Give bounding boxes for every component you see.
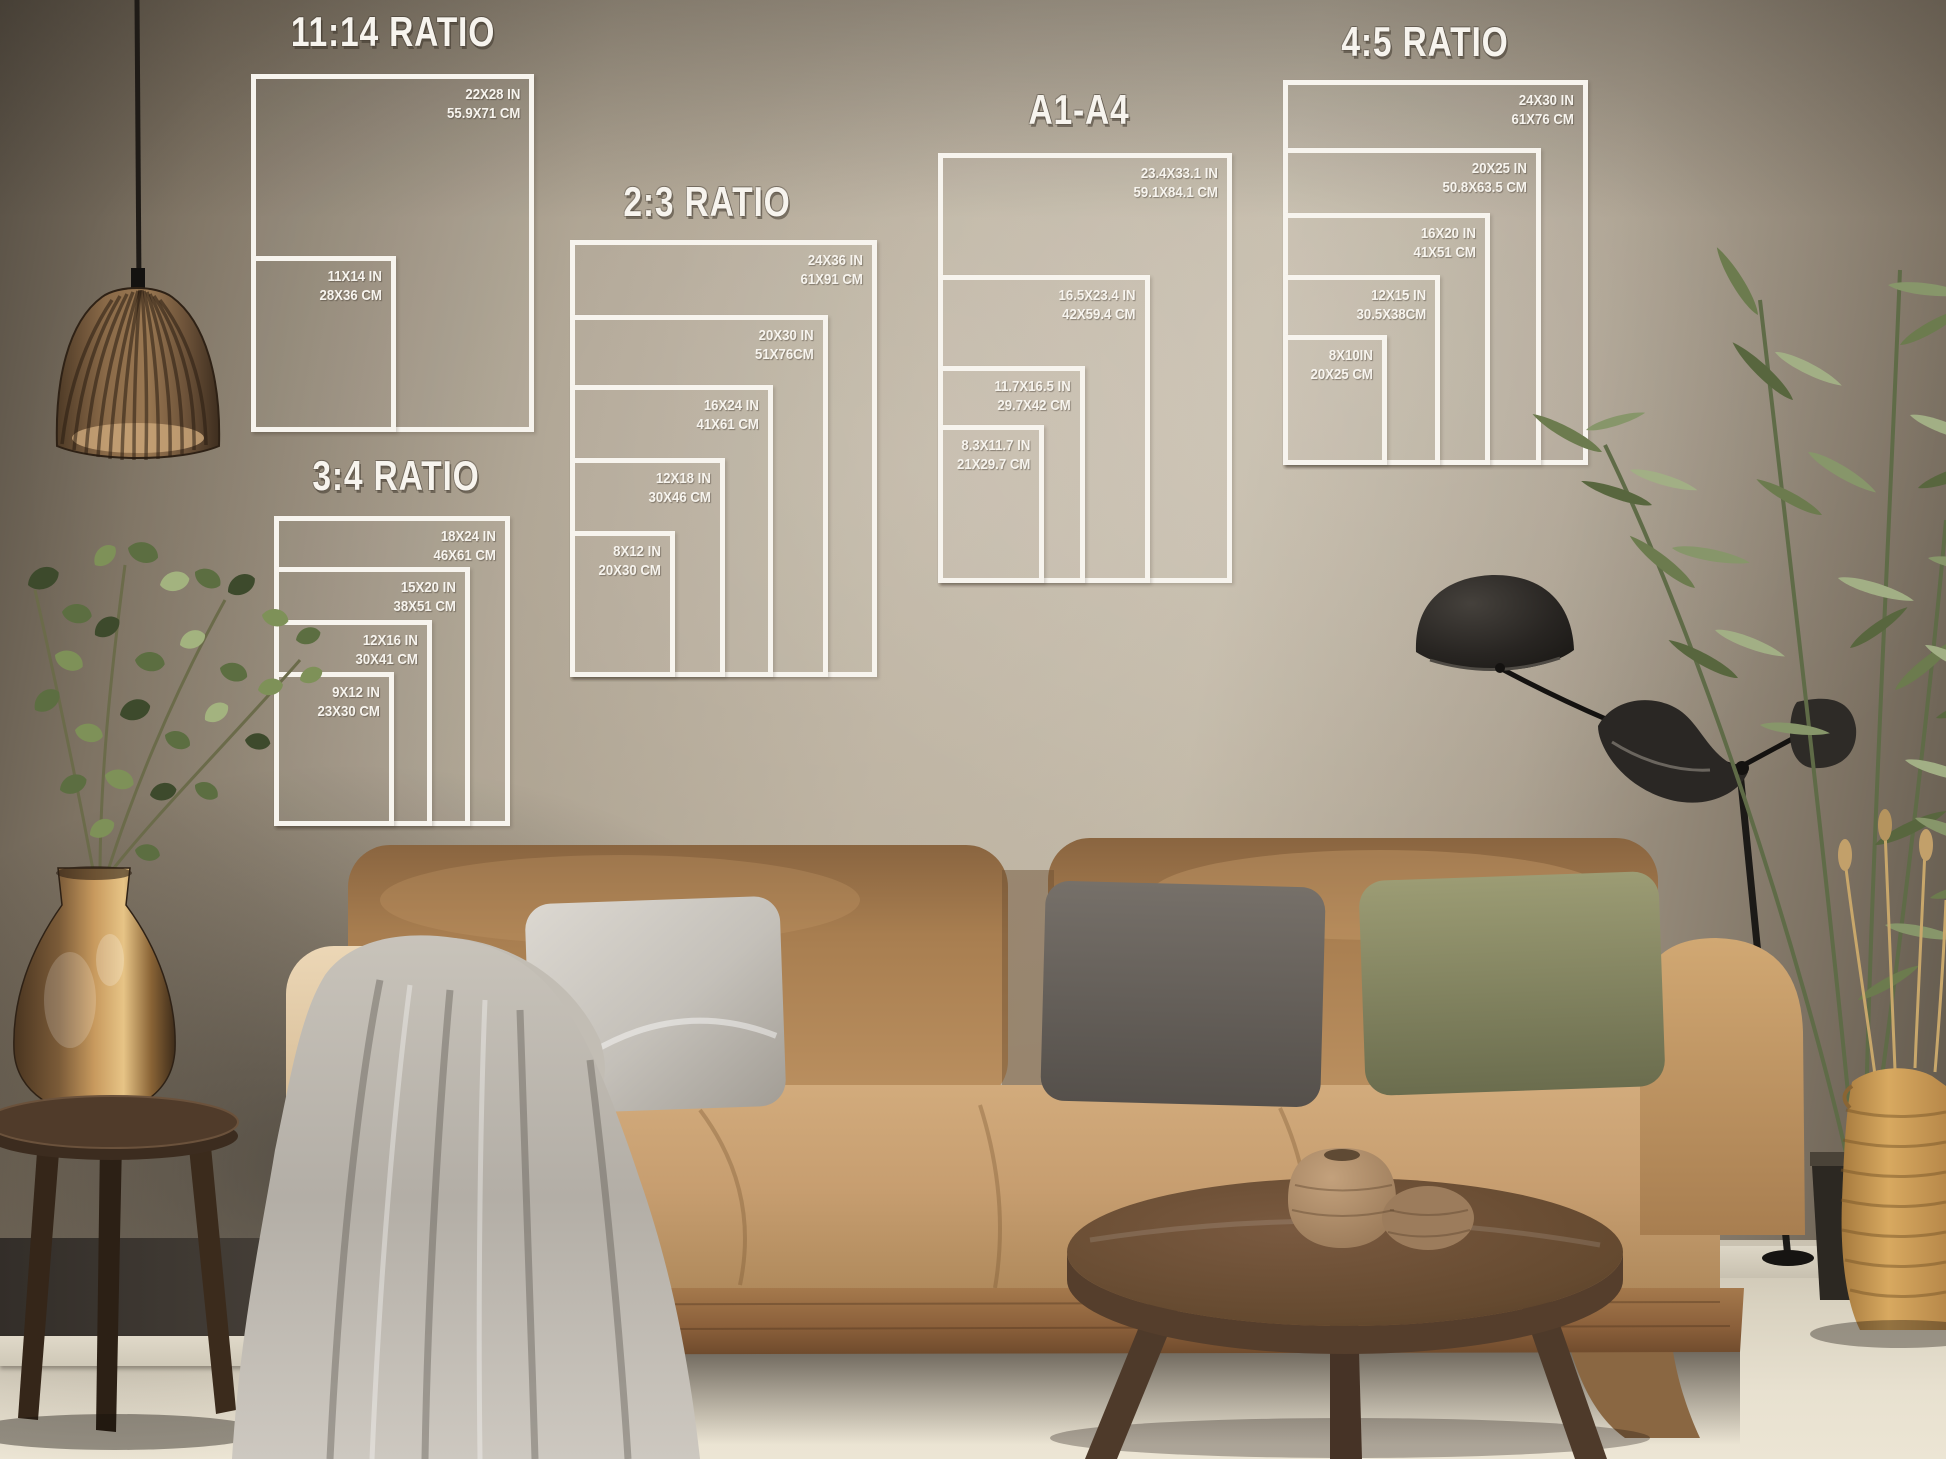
pendant-lamp [57,0,219,460]
decor-vase-small [1382,1186,1474,1250]
copper-vase [14,866,175,1115]
side-stool [0,1096,265,1450]
living-room-poster-size-guide: 11:14 RATIO 22X28 IN 55.9X71 CM 11X14 IN… [0,0,1946,1459]
stool-shadow [0,1414,265,1450]
lamp-wave-shade [1598,700,1748,803]
decor-vase-large [1288,1148,1396,1248]
sofa-armrest-right [1640,938,1805,1235]
pillow-dark-gray [1040,880,1326,1107]
pillow-olive [1358,871,1665,1096]
lamp-dome-shade [1416,575,1574,671]
room-scene [0,0,1946,1459]
eucalyptus-plant [24,538,325,882]
pillows [524,871,1665,1115]
